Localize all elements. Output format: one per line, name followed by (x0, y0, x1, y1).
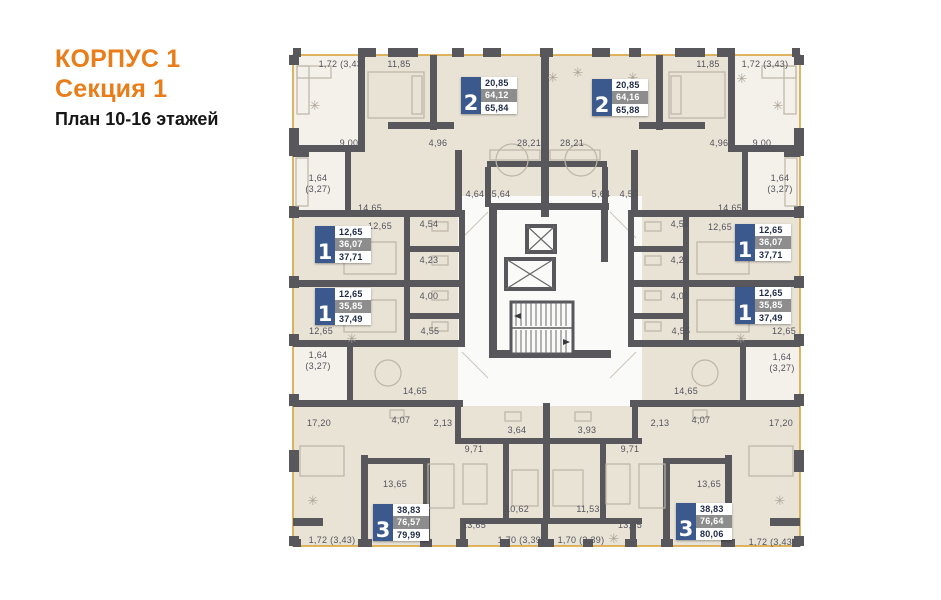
area-living: 12,65 (755, 224, 791, 236)
area-no-balcony: 76,64 (696, 515, 732, 527)
svg-text:✳: ✳ (775, 494, 786, 509)
svg-text:✳: ✳ (609, 532, 620, 547)
area-total: 37,49 (755, 312, 791, 324)
apartment-rooms-count: 2 (592, 79, 612, 116)
svg-text:✳: ✳ (308, 494, 319, 509)
area-total: 65,84 (481, 102, 517, 114)
area-total: 37,49 (335, 313, 371, 325)
svg-text:✳: ✳ (548, 71, 559, 86)
apartment-rooms-count: 2 (461, 77, 481, 114)
apartment-badge[interactable]: 1 12,65 36,07 37,71 (735, 224, 791, 261)
area-living: 38,83 (393, 504, 429, 516)
apartment-badge[interactable]: 2 20,85 64,12 65,84 (461, 77, 517, 114)
area-living: 12,65 (335, 226, 371, 238)
page: { "title": { "building": "КОРПУС 1", "se… (0, 0, 941, 600)
svg-text:✳: ✳ (573, 66, 584, 81)
area-no-balcony: 76,57 (393, 516, 429, 528)
area-no-balcony: 35,85 (755, 299, 791, 311)
apartment-rooms-count: 1 (315, 226, 335, 263)
area-living: 12,65 (755, 287, 791, 299)
area-no-balcony: 64,12 (481, 89, 517, 101)
svg-text:✳: ✳ (736, 332, 747, 347)
apartment-rooms-count: 3 (373, 504, 393, 541)
apartment-rooms-count: 3 (676, 503, 696, 540)
svg-text:✳: ✳ (347, 332, 358, 347)
area-living: 20,85 (612, 79, 648, 91)
apartment-rooms-count: 1 (735, 287, 755, 324)
area-no-balcony: 36,07 (755, 236, 791, 248)
area-total: 79,99 (393, 529, 429, 541)
svg-text:✳: ✳ (737, 72, 748, 87)
svg-text:✳: ✳ (773, 99, 784, 114)
apartment-badge[interactable]: 2 20,85 64,16 65,88 (592, 79, 648, 116)
area-total: 65,88 (612, 104, 648, 116)
apartment-badge[interactable]: 1 12,65 35,85 37,49 (735, 287, 791, 324)
apartment-rooms-count: 1 (735, 224, 755, 261)
apartment-rooms-count: 1 (315, 288, 335, 325)
area-living: 12,65 (335, 288, 371, 300)
area-no-balcony: 64,16 (612, 91, 648, 103)
apartment-badge[interactable]: 3 38,83 76,64 80,06 (676, 503, 732, 540)
apartment-badge[interactable]: 3 38,83 76,57 79,99 (373, 504, 429, 541)
apartment-badge[interactable]: 1 12,65 36,07 37,71 (315, 226, 371, 263)
apartment-badge[interactable]: 1 12,65 35,85 37,49 (315, 288, 371, 325)
area-living: 20,85 (481, 77, 517, 89)
svg-text:✳: ✳ (310, 99, 321, 114)
area-total: 80,06 (696, 528, 732, 540)
area-no-balcony: 36,07 (335, 238, 371, 250)
area-no-balcony: 35,85 (335, 300, 371, 312)
area-total: 37,71 (755, 249, 791, 261)
area-living: 38,83 (696, 503, 732, 515)
area-total: 37,71 (335, 251, 371, 263)
staircase (511, 302, 573, 354)
